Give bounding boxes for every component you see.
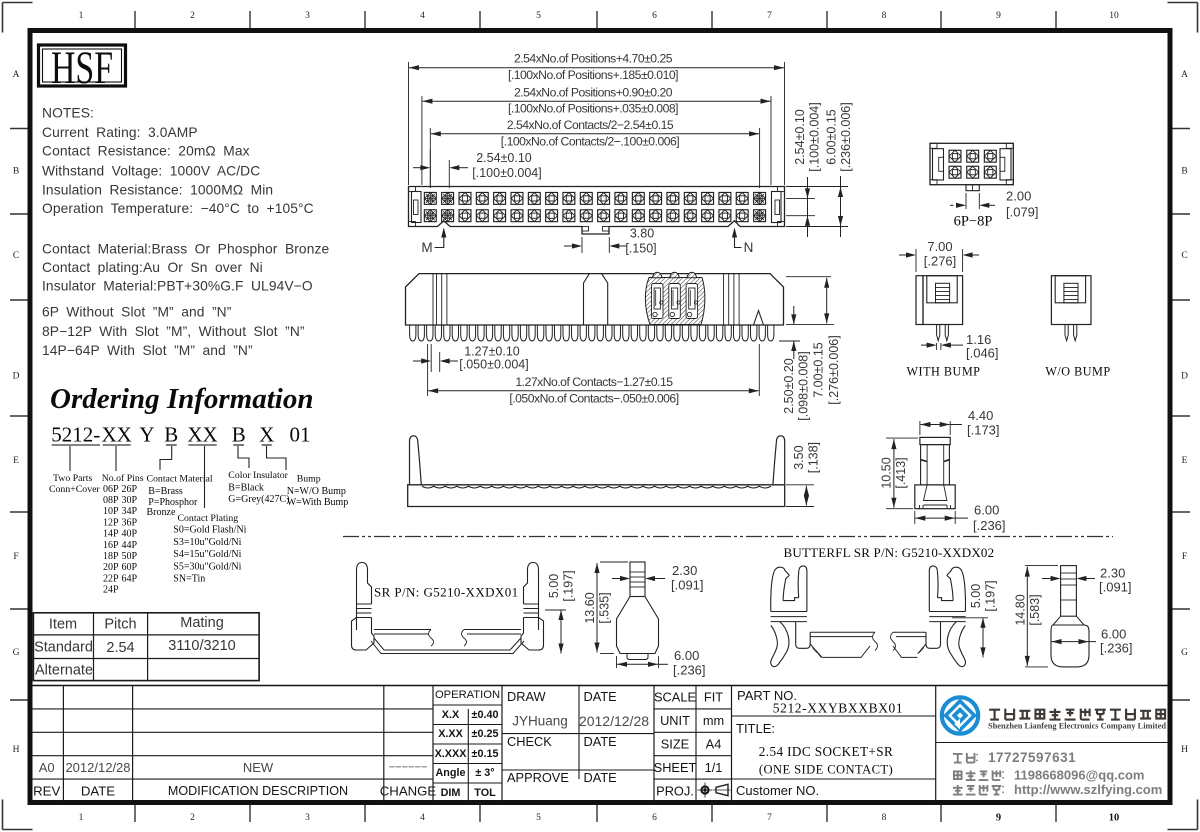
svg-text:2.54xNo.of Positions+0.90±0.2: 2.54xNo.of Positions+0.90±0.20 [514,86,673,100]
svg-text:7: 7 [767,11,772,21]
svg-text:Insulation Resistance: 1000MΩ: Insulation Resistance: 1000MΩ Min [42,183,273,198]
svg-text:E: E [13,456,19,466]
svg-text:±0.15: ±0.15 [472,748,499,760]
svg-text:[.236±0.006]: [.236±0.006] [839,102,853,171]
svg-text:2.54±0.10: 2.54±0.10 [793,109,807,165]
svg-text:14.80: 14.80 [1014,594,1028,625]
svg-text:B=Black: B=Black [228,483,264,494]
svg-text:6: 6 [652,813,657,823]
svg-text:B=Brass: B=Brass [148,486,183,497]
svg-text:X.XXX: X.XXX [435,748,468,760]
svg-text:Angle: Angle [436,767,466,779]
svg-text:F: F [1182,552,1187,562]
svg-text:50P: 50P [122,551,138,562]
svg-text:2012/12/28: 2012/12/28 [579,713,649,729]
svg-text:6P−8P: 6P−8P [954,214,993,230]
svg-text:A: A [1181,70,1188,80]
svg-text:[.100±0.004]: [.100±0.004] [808,102,822,171]
svg-text:mm: mm [703,713,724,728]
svg-text:3.50: 3.50 [792,445,806,469]
svg-text:DRAW: DRAW [507,689,547,704]
svg-text:No.of Pins: No.of Pins [102,473,144,484]
svg-text:Shenzhen Lianfeng Electronics: Shenzhen Lianfeng Electronics Company Li… [988,721,1166,731]
svg-text:5212-: 5212- [51,423,100,447]
svg-text:H: H [1181,745,1188,755]
svg-text:TITLE:: TITLE: [736,721,775,736]
svg-text:Item: Item [49,617,77,633]
svg-text:D: D [1181,372,1188,382]
svg-text:4: 4 [420,813,425,823]
svg-text:3.80: 3.80 [630,227,654,241]
svg-text:8: 8 [882,813,887,823]
svg-text:[.100xNo.of Positions+.185±0.: [.100xNo.of Positions+.185±0.010] [508,68,678,82]
svg-text:16P: 16P [103,540,119,551]
svg-text:5212-XXYBXXBX01: 5212-XXYBXXBX01 [773,701,904,716]
svg-text:8P−12P With Slot ”M”, Without: 8P−12P With Slot ”M”, Without Slot ”N” [42,324,305,339]
svg-text:2.54±0.10: 2.54±0.10 [476,151,532,165]
svg-text:X: X [259,423,274,447]
svg-text:2.54: 2.54 [106,640,134,656]
svg-text:Mating: Mating [180,615,224,631]
svg-text:[.535]: [.535] [598,592,612,623]
svg-text:08P: 08P [103,495,119,506]
svg-text:Bump: Bump [297,474,321,485]
svg-text:5: 5 [536,813,541,823]
svg-text:Alternate: Alternate [35,663,93,679]
svg-text:REV: REV [33,783,60,798]
svg-text:17727597631: 17727597631 [988,750,1076,765]
svg-text:Conn+Cover: Conn+Cover [49,484,100,495]
svg-text:HSF: HSF [51,42,113,94]
svg-text:S0=Gold Flash/Ni: S0=Gold Flash/Ni [173,525,246,536]
svg-text:[.236]: [.236] [973,518,1006,533]
svg-text:2.54xNo.of Contacts/2−2.54±0.: 2.54xNo.of Contacts/2−2.54±0.15 [507,118,674,132]
svg-text:Insulator Material:PBT+30%G.F: Insulator Material:PBT+30%G.F UL94V−O [42,278,313,293]
svg-text:CHANGE: CHANGE [380,783,437,798]
svg-text:2.30: 2.30 [672,563,697,578]
svg-text:BUTTERFL SR P/N: G5210-XXDX02: BUTTERFL SR P/N: G5210-XXDX02 [784,545,995,560]
svg-text:Contact Material:Brass Or Phos: Contact Material:Brass Or Phosphor Bronz… [42,242,329,257]
svg-text:DATE: DATE [81,783,115,798]
svg-text:1/1: 1/1 [705,760,723,775]
svg-text:DATE: DATE [584,689,617,704]
svg-text:[.138]: [.138] [807,442,821,473]
svg-text:22P: 22P [103,573,119,584]
svg-text:A0: A0 [39,760,55,775]
svg-text:1.27xNo.of Contacts−1.27±0.15: 1.27xNo.of Contacts−1.27±0.15 [515,375,673,389]
svg-text:64P: 64P [122,573,138,584]
svg-text:2012/12/28: 2012/12/28 [65,760,130,775]
svg-text:6.00: 6.00 [674,648,699,663]
svg-text:Standard: Standard [34,639,93,655]
svg-text:[.100±0.004]: [.100±0.004] [472,166,541,180]
svg-text:B: B [13,167,19,177]
svg-text:C: C [1181,251,1187,261]
svg-text:[.583]: [.583] [1028,594,1042,625]
svg-text:[.050xNo.of Contacts−.050±0.0: [.050xNo.of Contacts−.050±0.006] [509,392,678,406]
svg-text:6: 6 [652,11,657,21]
svg-text:6.00±0.15: 6.00±0.15 [825,109,839,165]
svg-text:[.197]: [.197] [984,580,998,611]
svg-text:Contact Resistance: 20mΩ Max: Contact Resistance: 20mΩ Max [42,144,250,159]
svg-text:4: 4 [420,11,425,21]
svg-text:NOTES:: NOTES: [42,106,94,121]
svg-text:34P: 34P [122,506,138,517]
svg-text:36P: 36P [122,517,138,528]
svg-text:9: 9 [996,11,1001,21]
svg-text:2.54xNo.of Positions+4.70±0.2: 2.54xNo.of Positions+4.70±0.25 [514,52,673,66]
svg-text:[.098±0.008]: [.098±0.008] [797,351,811,420]
svg-text:[.091]: [.091] [671,577,704,592]
svg-text:S4=15u"Gold/Ni: S4=15u"Gold/Ni [173,549,241,560]
svg-text:XX: XX [187,423,217,447]
svg-text:：: ： [1000,784,1012,796]
svg-text:Pitch: Pitch [104,617,136,633]
svg-text:Contact plating:Au Or Sn over: Contact plating:Au Or Sn over Ni [42,260,263,275]
svg-text:4.40: 4.40 [968,408,993,423]
svg-text:44P: 44P [122,540,138,551]
svg-text:D: D [13,372,20,382]
svg-text:Customer NO.: Customer NO. [736,783,819,798]
svg-text:1.27±0.10: 1.27±0.10 [464,345,520,359]
svg-text:DATE: DATE [584,734,617,749]
svg-text:OPERATION: OPERATION [435,689,500,701]
svg-text:S5=30u"Gold/Ni: S5=30u"Gold/Ni [173,562,241,573]
svg-text:http://www.szlfying.com: http://www.szlfying.com [1014,782,1162,797]
svg-text:[.276]: [.276] [924,254,957,269]
svg-text:Contact Plating: Contact Plating [178,513,239,524]
svg-text:X.X: X.X [442,709,460,721]
svg-text:2.54 IDC SOCKET+SR: 2.54 IDC SOCKET+SR [759,744,893,759]
svg-text:2.50±0.20: 2.50±0.20 [782,358,796,414]
svg-text:A: A [13,70,20,80]
svg-text:3: 3 [305,11,310,21]
svg-text:10P: 10P [103,506,119,517]
svg-text:± 3°: ± 3° [475,767,494,779]
svg-text:DATE: DATE [584,770,617,785]
svg-text:G: G [13,648,20,658]
svg-text:Operation Temperature: −40°C t: Operation Temperature: −40°C to +105°C [42,201,314,216]
svg-text:−−−−−−: −−−−−− [389,761,428,773]
svg-text:20P: 20P [103,562,119,573]
svg-text:H: H [13,745,20,755]
svg-text:B: B [164,423,178,447]
svg-text:Two Parts: Two Parts [53,473,93,484]
svg-text:[.100xNo.of Contacts/2−.100±0: [.100xNo.of Contacts/2−.100±0.006] [501,134,680,148]
svg-text:7: 7 [767,813,772,823]
svg-text:18P: 18P [103,551,119,562]
svg-text:±0.40: ±0.40 [472,709,499,721]
svg-text:5: 5 [536,11,541,21]
svg-text:[.050±0.004]: [.050±0.004] [459,358,528,372]
svg-text:[.276±0.006]: [.276±0.006] [827,335,841,404]
svg-text:3110/3210: 3110/3210 [168,638,235,654]
svg-text:60P: 60P [122,562,138,573]
svg-text:01: 01 [290,423,311,447]
svg-text:Contact Material: Contact Material [147,473,213,484]
svg-text:F: F [13,552,18,562]
svg-text:±0.25: ±0.25 [472,728,499,740]
svg-text:TOL: TOL [474,787,496,799]
svg-text:6.00: 6.00 [1101,626,1126,641]
svg-text:[.173]: [.173] [967,423,1000,438]
svg-text:[.150]: [.150] [625,242,656,256]
svg-text:2.30: 2.30 [1100,566,1125,581]
svg-text:：: ： [1000,769,1012,781]
svg-text:10: 10 [1109,813,1120,824]
svg-text:SIZE: SIZE [661,737,689,752]
svg-text:B: B [1181,167,1187,177]
svg-text:PROJ.: PROJ. [656,783,694,798]
svg-text:2: 2 [190,11,195,21]
svg-text:26P: 26P [122,484,138,495]
svg-text:24P: 24P [103,585,119,596]
svg-text:E: E [1182,456,1188,466]
svg-text:SR P/N: G5210-XXDX01: SR P/N: G5210-XXDX01 [374,585,519,600]
svg-text:3: 3 [305,813,310,823]
svg-text:[.079]: [.079] [1006,205,1039,220]
svg-text:Ordering Information: Ordering Information [50,383,313,415]
svg-text:40P: 40P [122,529,138,540]
svg-text:UNIT: UNIT [660,713,690,728]
svg-text:G: G [1181,648,1188,658]
svg-text:[.046]: [.046] [966,346,999,361]
svg-text:N: N [744,240,754,255]
svg-text:5.00: 5.00 [969,584,983,608]
svg-text:8: 8 [882,11,887,21]
svg-text:SN=Tin: SN=Tin [173,574,205,585]
svg-text:XX: XX [102,423,132,447]
svg-text:6.00: 6.00 [974,502,999,517]
svg-text:FIT: FIT [704,690,723,705]
svg-text:7.00: 7.00 [927,239,952,254]
svg-text:13.60: 13.60 [583,592,597,623]
svg-text:Withstand Voltage: 1000V AC/DC: Withstand Voltage: 1000V AC/DC [42,164,260,179]
svg-text:Current Rating: 3.0AMP: Current Rating: 3.0AMP [42,125,198,140]
svg-text:N=W/O Bump: N=W/O Bump [287,486,346,497]
svg-text:DIM: DIM [441,787,461,799]
svg-text:[.236]: [.236] [673,662,706,677]
svg-text:JYHuang: JYHuang [512,714,568,729]
svg-text:12P: 12P [103,517,119,528]
svg-text:：: ： [974,752,986,764]
svg-text:SHEET: SHEET [654,760,697,775]
svg-text:CHECK: CHECK [507,734,552,749]
svg-text:SCALE: SCALE [654,690,696,705]
svg-text:1: 1 [79,11,84,21]
svg-text:5.00: 5.00 [547,574,561,598]
svg-text:M: M [421,240,432,255]
svg-text:A4: A4 [706,737,722,752]
svg-text:W/O BUMP: W/O BUMP [1045,365,1110,379]
svg-text:2: 2 [190,813,195,823]
svg-text:W=With Bump: W=With Bump [287,497,349,508]
svg-text:G=Grey(427C): G=Grey(427C) [228,494,289,505]
svg-text:30P: 30P [122,495,138,506]
svg-text:14P: 14P [103,529,119,540]
svg-text:1198668096@qq.com: 1198668096@qq.com [1014,768,1144,783]
svg-text:[.197]: [.197] [562,570,576,601]
svg-text:6P Without Slot ”M” and ”N”: 6P Without Slot ”M” and ”N” [42,305,232,320]
svg-text:14P−64P With Slot ”M” and ”N”: 14P−64P With Slot ”M” and ”N” [42,343,253,358]
svg-text:APPROVE: APPROVE [507,770,569,785]
svg-text:[.236]: [.236] [1100,641,1133,656]
svg-text:WITH BUMP: WITH BUMP [907,365,981,379]
svg-text:Bronze: Bronze [147,507,176,518]
svg-text:10.50: 10.50 [880,457,894,488]
svg-text:MODIFICATION DESCRIPTION: MODIFICATION DESCRIPTION [168,784,348,798]
svg-text:[.091]: [.091] [1099,580,1132,595]
svg-text:X.XX: X.XX [438,728,463,740]
svg-text:(ONE SIDE CONTACT): (ONE SIDE CONTACT) [759,763,893,777]
svg-text:C: C [13,251,19,261]
svg-text:10: 10 [1109,11,1119,21]
svg-text:S3=10u"Gold/Ni: S3=10u"Gold/Ni [173,537,241,548]
svg-text:[.100xNo.of Positions+.035±0.: [.100xNo.of Positions+.035±0.008] [508,102,678,116]
svg-text:1: 1 [79,813,84,823]
svg-text:Y: Y [139,423,154,447]
svg-text:2.00: 2.00 [1006,189,1031,204]
svg-text:7.00±0.15: 7.00±0.15 [812,342,826,398]
svg-text:06P: 06P [103,484,119,495]
svg-text:NEW: NEW [243,760,274,775]
svg-text:[.413]: [.413] [894,457,908,488]
svg-text:Color Insulator: Color Insulator [228,470,288,481]
svg-text:B: B [232,423,246,447]
svg-text:9: 9 [996,813,1001,824]
